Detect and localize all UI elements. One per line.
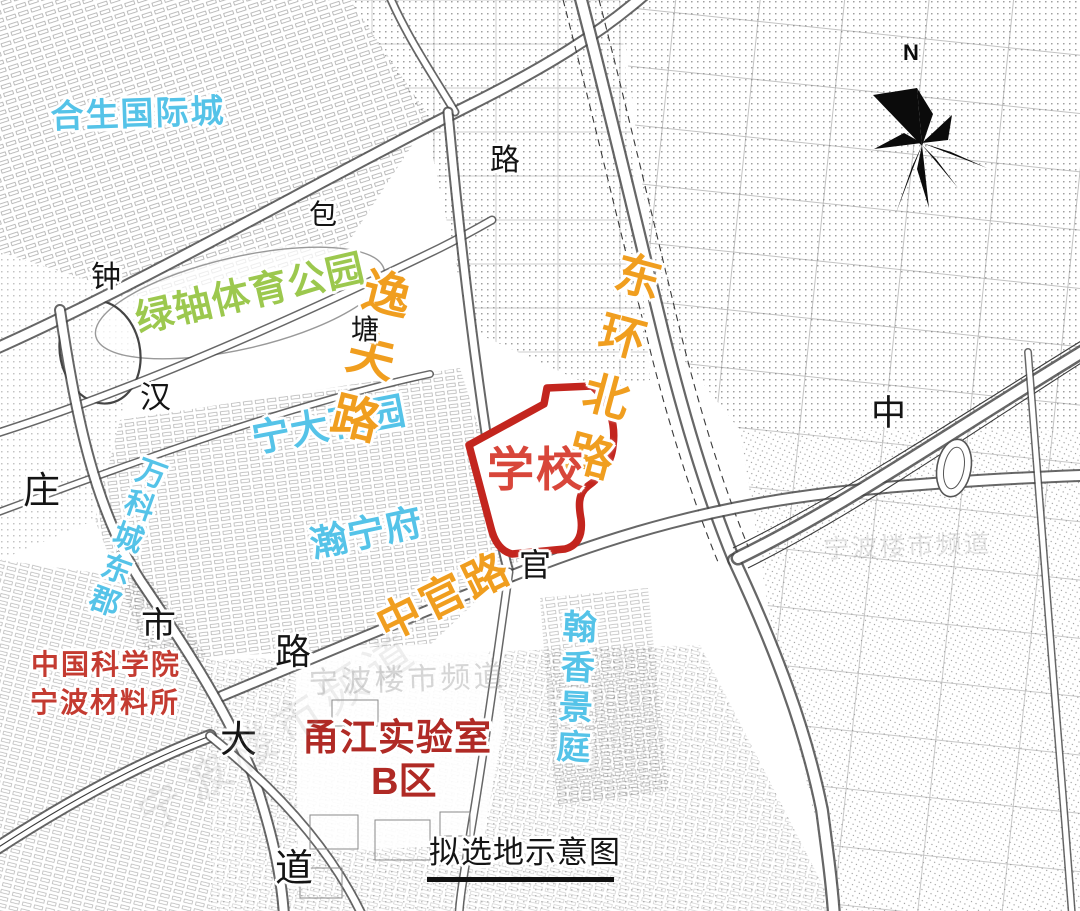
- school-site-outline: [469, 386, 614, 554]
- site-selection-map: N 合生国际城绿轴体育公园宁大花园瀚宁府万科城东郡翰香景庭逸夫路东环北路中官路学…: [0, 0, 1080, 911]
- map-base-drawing: [0, 0, 1080, 911]
- caption-underline: [427, 877, 614, 882]
